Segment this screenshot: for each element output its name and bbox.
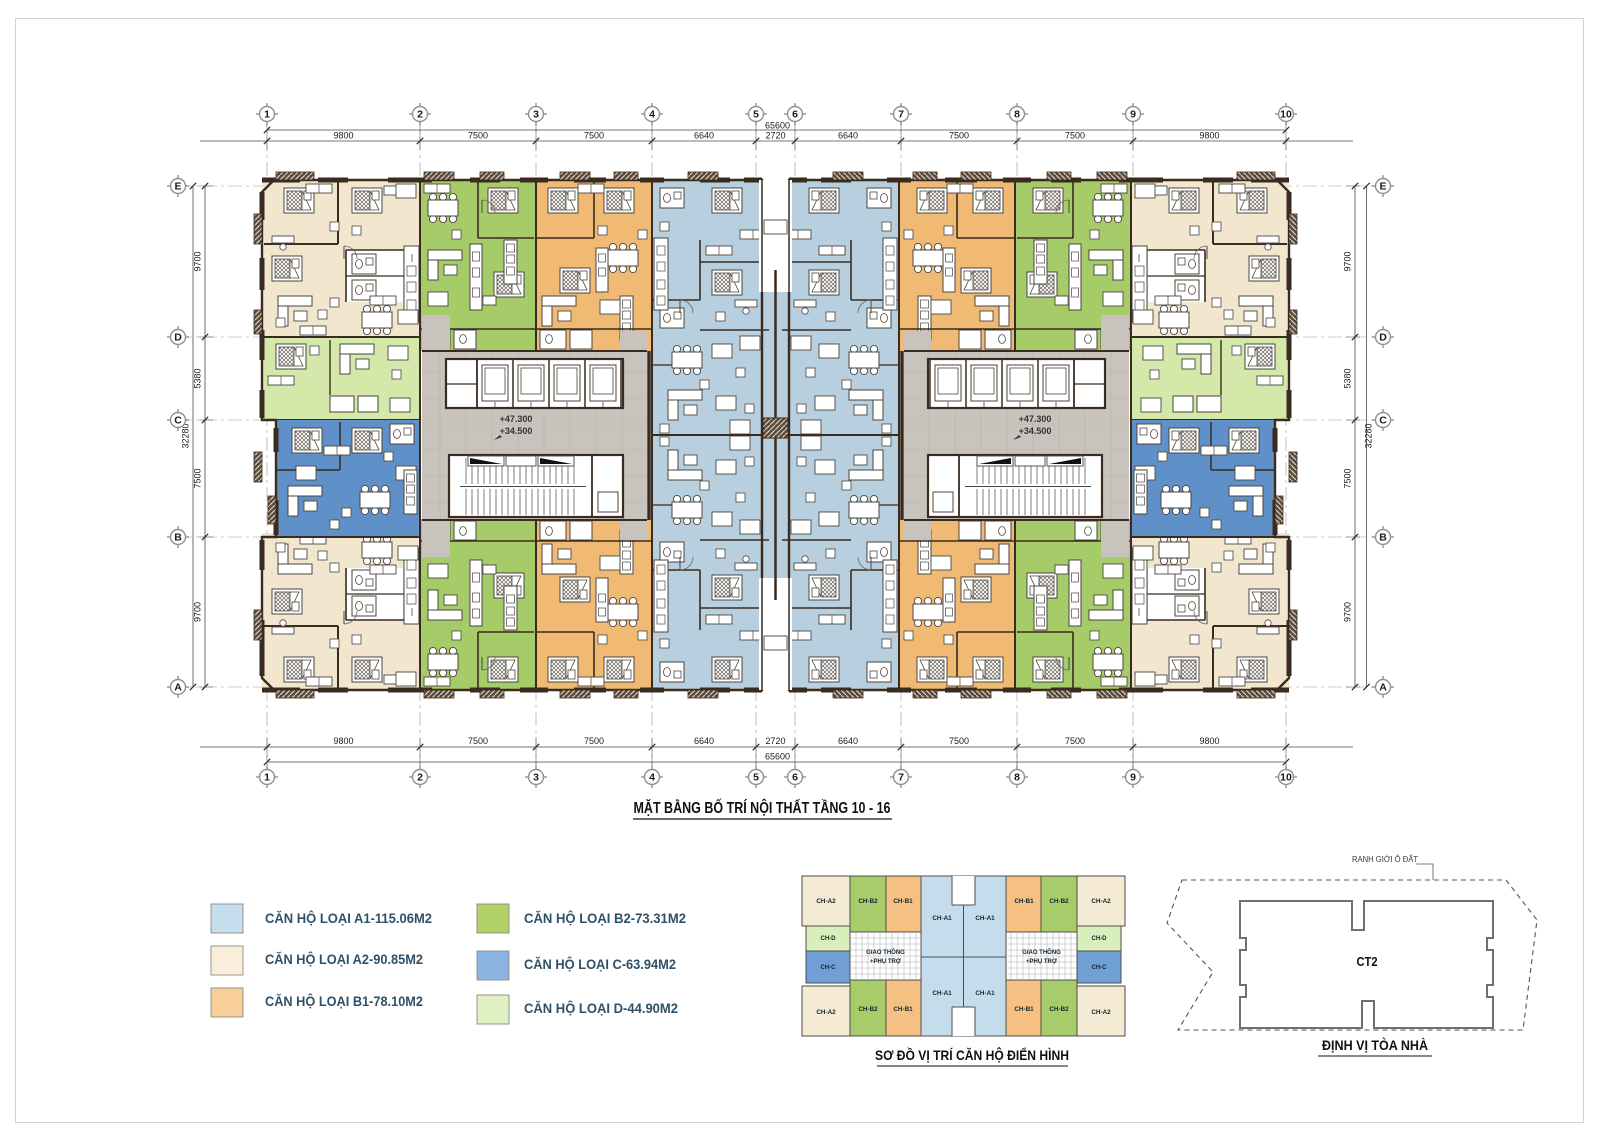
svg-text:9700: 9700 [1343, 602, 1353, 622]
svg-text:CH-A1: CH-A1 [932, 915, 952, 922]
svg-text:CH-B2: CH-B2 [1049, 1006, 1069, 1013]
svg-text:CH-A2: CH-A2 [1091, 1009, 1111, 1016]
svg-text:5380: 5380 [1343, 368, 1353, 388]
svg-text:CĂN HỘ LOẠI A1-115.06M2: CĂN HỘ LOẠI A1-115.06M2 [265, 911, 432, 926]
svg-text:CH-C: CH-C [821, 965, 837, 971]
svg-text:7500: 7500 [949, 131, 969, 141]
svg-text:32280: 32280 [1364, 423, 1374, 448]
svg-text:3: 3 [533, 772, 539, 784]
svg-text:9800: 9800 [1199, 736, 1219, 746]
svg-text:6640: 6640 [694, 131, 714, 141]
svg-text:ĐỊNH VỊ TÒA NHÀ: ĐỊNH VỊ TÒA NHÀ [1322, 1038, 1428, 1053]
svg-text:CH-D: CH-D [1092, 936, 1108, 942]
svg-text:9: 9 [1130, 109, 1136, 121]
svg-text:5380: 5380 [193, 368, 203, 388]
svg-text:CH-A2: CH-A2 [1091, 898, 1111, 905]
svg-text:C: C [1379, 415, 1387, 427]
svg-text:9800: 9800 [333, 131, 353, 141]
svg-text:9700: 9700 [1343, 251, 1353, 271]
svg-text:7500: 7500 [468, 131, 488, 141]
svg-text:2720: 2720 [765, 736, 785, 746]
svg-text:4: 4 [649, 772, 655, 784]
svg-text:2720: 2720 [765, 131, 785, 141]
svg-text:CĂN HỘ LOẠI B1-78.10M2: CĂN HỘ LOẠI B1-78.10M2 [265, 994, 423, 1009]
svg-text:E: E [1379, 181, 1386, 193]
svg-text:D: D [1379, 332, 1387, 344]
svg-text:MẶT BẰNG BỐ TRÍ NỘI THẤT TẦNG: MẶT BẰNG BỐ TRÍ NỘI THẤT TẦNG 10 - 16 [634, 797, 891, 817]
svg-text:CH-B1: CH-B1 [893, 898, 913, 905]
svg-text:CH-B2: CH-B2 [1049, 898, 1069, 905]
svg-text:CH-B1: CH-B1 [1014, 898, 1034, 905]
svg-text:CH-D: CH-D [821, 936, 837, 942]
svg-text:9800: 9800 [1199, 131, 1219, 141]
svg-text:6640: 6640 [694, 736, 714, 746]
svg-text:6: 6 [792, 772, 798, 784]
svg-text:B: B [1379, 532, 1387, 544]
svg-text:7500: 7500 [949, 736, 969, 746]
svg-text:2: 2 [417, 109, 423, 121]
svg-text:GIAO THÔNG: GIAO THÔNG [866, 948, 905, 956]
svg-text:7500: 7500 [193, 468, 203, 488]
svg-text:5: 5 [753, 772, 759, 784]
svg-text:2: 2 [417, 772, 423, 784]
svg-text:CĂN HỘ LOẠI A2-90.85M2: CĂN HỘ LOẠI A2-90.85M2 [265, 952, 423, 967]
svg-text:E: E [174, 181, 181, 193]
svg-text:D: D [174, 332, 182, 344]
svg-text:65600: 65600 [765, 121, 790, 131]
svg-text:A: A [174, 682, 182, 694]
svg-text:7500: 7500 [1065, 131, 1085, 141]
svg-text:CH-A1: CH-A1 [932, 990, 952, 997]
svg-text:3: 3 [533, 109, 539, 121]
svg-text:32280: 32280 [181, 423, 191, 448]
svg-text:CĂN HỘ LOẠI D-44.90M2: CĂN HỘ LOẠI D-44.90M2 [524, 1001, 678, 1016]
svg-text:6: 6 [792, 109, 798, 121]
svg-text:8: 8 [1014, 109, 1020, 121]
svg-text:7500: 7500 [584, 131, 604, 141]
svg-text:CĂN HỘ LOẠI C-63.94M2: CĂN HỘ LOẠI C-63.94M2 [524, 957, 676, 972]
svg-text:+34.500: +34.500 [1019, 426, 1052, 436]
svg-text:1: 1 [264, 772, 270, 784]
svg-text:4: 4 [649, 109, 655, 121]
svg-text:+47.300: +47.300 [1019, 414, 1052, 424]
svg-text:CH-A1: CH-A1 [975, 915, 995, 922]
svg-text:1: 1 [264, 109, 270, 121]
svg-text:5: 5 [753, 109, 759, 121]
svg-text:7500: 7500 [1343, 468, 1353, 488]
svg-text:9700: 9700 [193, 251, 203, 271]
svg-text:+PHỤ TRỢ: +PHỤ TRỢ [1026, 959, 1058, 965]
svg-text:CH-A2: CH-A2 [816, 1009, 836, 1016]
svg-text:SƠ ĐỒ VỊ TRÍ CĂN HỘ ĐIỂN HÌNH: SƠ ĐỒ VỊ TRÍ CĂN HỘ ĐIỂN HÌNH [875, 1046, 1069, 1063]
svg-text:9700: 9700 [193, 602, 203, 622]
svg-text:65600: 65600 [765, 752, 790, 762]
svg-text:GIAO THÔNG: GIAO THÔNG [1022, 948, 1061, 956]
svg-text:A: A [1379, 682, 1387, 694]
svg-text:CH-B2: CH-B2 [858, 1006, 878, 1013]
svg-text:CH-B1: CH-B1 [893, 1006, 913, 1013]
svg-text:B: B [174, 532, 182, 544]
svg-text:7500: 7500 [584, 736, 604, 746]
svg-text:CH-B2: CH-B2 [858, 898, 878, 905]
svg-text:6640: 6640 [838, 736, 858, 746]
svg-text:9: 9 [1130, 772, 1136, 784]
svg-text:10: 10 [1280, 772, 1292, 784]
svg-text:7: 7 [898, 772, 904, 784]
svg-text:+34.500: +34.500 [500, 426, 533, 436]
svg-text:CH-B1: CH-B1 [1014, 1006, 1034, 1013]
svg-text:C: C [174, 415, 182, 427]
svg-text:CH-A1: CH-A1 [975, 990, 995, 997]
svg-text:7500: 7500 [468, 736, 488, 746]
svg-text:8: 8 [1014, 772, 1020, 784]
svg-text:7500: 7500 [1065, 736, 1085, 746]
svg-text:7: 7 [898, 109, 904, 121]
svg-text:CT2: CT2 [1357, 954, 1378, 969]
svg-text:CĂN HỘ LOẠI B2-73.31M2: CĂN HỘ LOẠI B2-73.31M2 [524, 911, 686, 926]
svg-text:CH-A2: CH-A2 [816, 898, 836, 905]
svg-text:6640: 6640 [838, 131, 858, 141]
svg-text:RANH GIỚI Ô ĐẤT: RANH GIỚI Ô ĐẤT [1352, 854, 1418, 864]
svg-text:9800: 9800 [333, 736, 353, 746]
svg-text:CH-C: CH-C [1092, 965, 1108, 971]
svg-text:10: 10 [1280, 109, 1292, 121]
svg-text:+47.300: +47.300 [500, 414, 533, 424]
svg-text:+PHỤ TRỢ: +PHỤ TRỢ [870, 959, 902, 965]
